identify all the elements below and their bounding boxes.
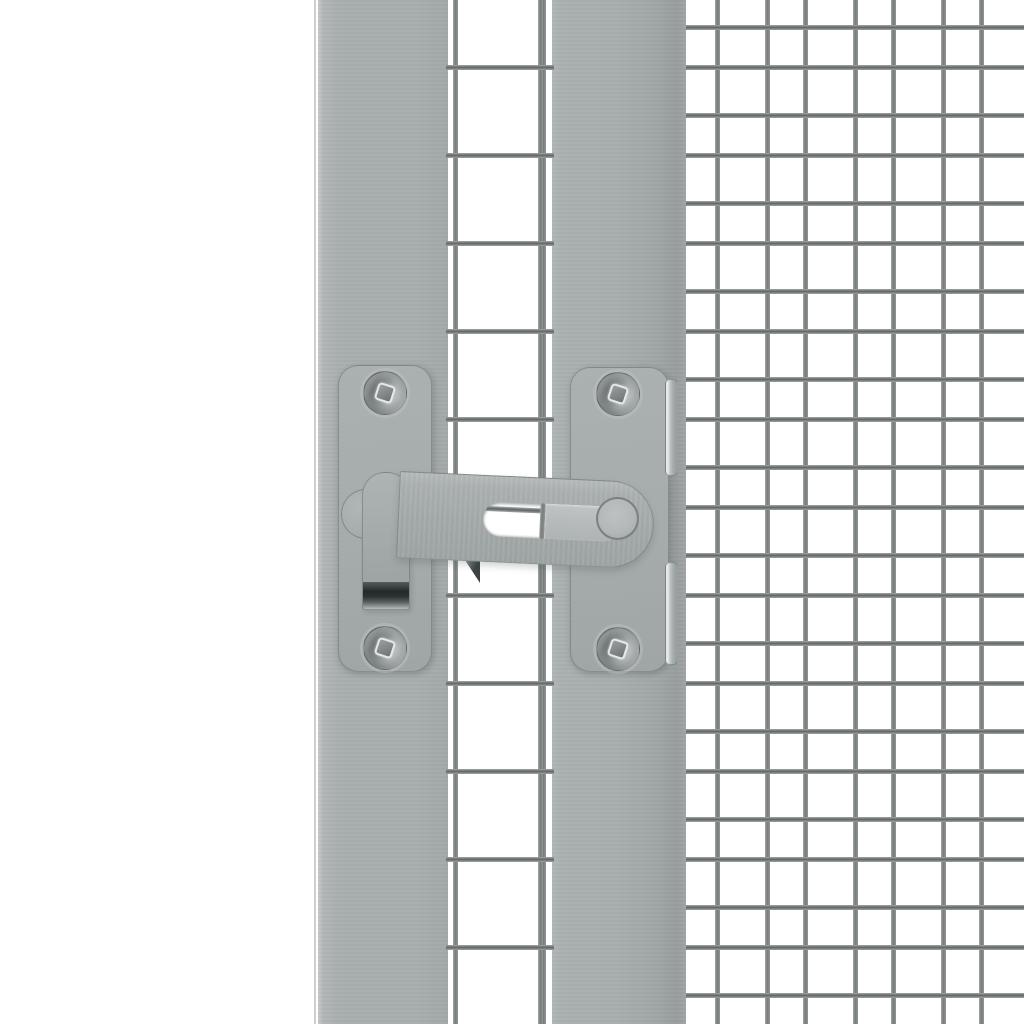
mesh-wire-horizontal — [686, 241, 1024, 246]
mesh-wire-horizontal — [686, 201, 1024, 206]
mesh-wire-horizontal — [686, 289, 1024, 294]
mesh-wire-horizontal — [446, 857, 554, 862]
mesh-wire-horizontal — [446, 769, 554, 774]
mesh-wire-horizontal — [686, 993, 1024, 998]
mesh-wire-horizontal — [686, 681, 1024, 686]
mesh-wire-horizontal — [686, 465, 1024, 470]
handle-grip-dark-tip — [363, 582, 409, 609]
screw-head — [363, 371, 407, 415]
mesh-wire-horizontal — [446, 593, 554, 598]
mesh-wire-horizontal — [446, 241, 554, 246]
wire-mesh-panel — [686, 0, 1024, 1024]
mesh-wire-horizontal — [686, 65, 1024, 70]
mesh-wire-horizontal — [686, 945, 1024, 950]
screw-drive-recess — [374, 382, 397, 405]
mesh-wire-horizontal — [446, 329, 554, 334]
mesh-wire-horizontal — [686, 641, 1024, 646]
mesh-wire-horizontal — [686, 417, 1024, 422]
mesh-wire-horizontal — [686, 769, 1024, 774]
mesh-wire-horizontal — [686, 593, 1024, 598]
screw-head — [363, 626, 407, 670]
mesh-wire-horizontal — [446, 65, 554, 70]
gate-latch-product-photo — [0, 0, 1024, 1024]
mesh-wire-horizontal — [483, 506, 546, 514]
mesh-wire-horizontal — [686, 729, 1024, 734]
frame-edge-highlight — [314, 0, 316, 1024]
mounting-tab — [665, 562, 678, 665]
mesh-wire-horizontal — [686, 905, 1024, 910]
mesh-wire-horizontal — [446, 417, 554, 422]
mesh-wire-horizontal — [686, 505, 1024, 510]
screw-head — [596, 627, 640, 671]
mounting-tab — [665, 379, 678, 476]
mesh-wire-horizontal — [686, 553, 1024, 558]
pivot-stud — [596, 497, 639, 540]
mesh-wire-horizontal — [686, 817, 1024, 822]
mesh-wire-horizontal — [686, 329, 1024, 334]
screw-drive-recess — [374, 637, 397, 660]
mesh-wire-horizontal — [686, 857, 1024, 862]
mesh-wire-horizontal — [446, 681, 554, 686]
mesh-wire-horizontal — [686, 113, 1024, 118]
screw-drive-recess — [607, 383, 630, 406]
screw-drive-recess — [607, 638, 630, 661]
mesh-wire-horizontal — [446, 153, 554, 158]
mesh-wire-horizontal — [686, 25, 1024, 30]
screw-head — [596, 372, 640, 416]
mesh-wire-horizontal — [686, 377, 1024, 382]
mesh-wire-horizontal — [686, 153, 1024, 158]
mesh-wire-horizontal — [446, 945, 554, 950]
